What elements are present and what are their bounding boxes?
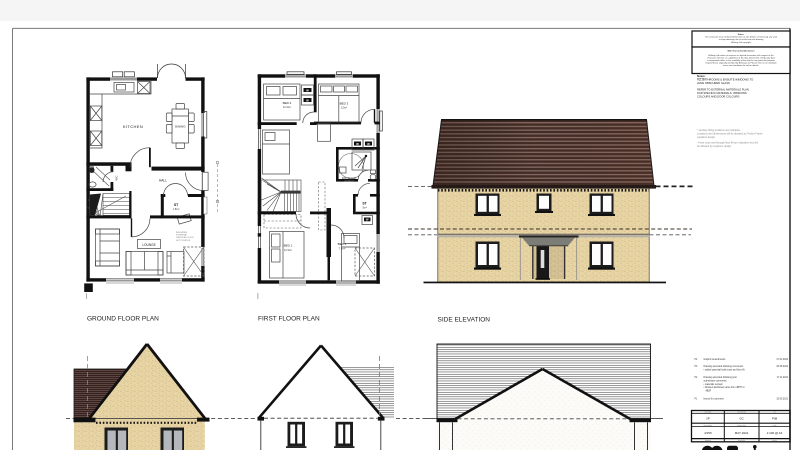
svg-text:12m²: 12m²	[341, 106, 347, 110]
svg-text:W: W	[356, 142, 359, 146]
svg-text:Bellway Ltd makes no express o: Bellway Ltd makes no express or implied …	[708, 54, 774, 57]
svg-text:scale: scale	[773, 425, 777, 427]
svg-text:20.05.2022: 20.05.2022	[777, 366, 789, 368]
svg-text:LIFT POSITION: LIFT POSITION	[176, 240, 191, 242]
svg-text:BED 4: BED 4	[283, 101, 292, 105]
svg-text:Graphic amendments: Graphic amendments	[704, 358, 727, 361]
svg-text:or shop drawings, do not scale: or shop drawings, do not scale from this…	[719, 38, 764, 41]
svg-text:Bellway Ltd copyright: Bellway Ltd copyright	[731, 41, 751, 44]
svg-text:W: W	[306, 98, 309, 102]
svg-text:HALL: HALL	[159, 179, 167, 183]
svg-text:P08: P08	[772, 417, 778, 421]
svg-text:11.5m²: 11.5m²	[284, 248, 292, 252]
svg-text:suppliers design.: suppliers design.	[697, 136, 716, 139]
svg-text:checked by: checked by	[737, 412, 746, 414]
svg-text:BED 2: BED 2	[338, 242, 347, 246]
svg-text:KITCHEN: KITCHEN	[123, 124, 143, 129]
svg-text:submission comments:: submission comments:	[704, 379, 728, 382]
svg-text:3m²: 3m²	[362, 206, 367, 210]
svg-text:Notes:: Notes:	[738, 33, 745, 36]
svg-text:POTENTIAL: POTENTIAL	[176, 234, 188, 237]
svg-text:INDICATIVE: INDICATIVE	[176, 231, 188, 234]
svg-text:• materials revised;: • materials revised;	[704, 383, 724, 386]
svg-text:4B2P: 4B2P	[706, 391, 712, 393]
svg-text:27.01.2022: 27.01.2022	[777, 359, 789, 361]
svg-text:2P: 2P	[706, 417, 710, 421]
svg-text:planning: planning	[705, 412, 711, 414]
svg-text:REFER TO EXTERNAL MATERIALS PL: REFER TO EXTERNAL MATERIALS PLAN	[697, 88, 749, 92]
svg-text:Web Transmittal Disclaimer: Web Transmittal Disclaimer	[727, 49, 754, 52]
svg-text:terms and conditions for furth: terms and conditions for further details…	[723, 64, 759, 67]
svg-text:GROUND FLOOR PLAN: GROUND FLOOR PLAN	[87, 316, 159, 323]
svg-text:be dictated by suppliers desig: be dictated by suppliers design	[697, 145, 732, 148]
svg-text:1.8m²: 1.8m²	[173, 207, 180, 211]
svg-text:4/155: 4/155	[704, 431, 712, 435]
svg-text:HAVE OBSCURED GLASS: HAVE OBSCURED GLASS	[697, 81, 730, 85]
svg-text:FOR SPECIFIC MATERIALS, WINDOW: FOR SPECIFIC MATERIALS, WINDOWS	[697, 91, 747, 95]
svg-text:Drawing amended following comm: Drawing amended following comments:	[704, 365, 744, 368]
svg-text:drawn date: drawn date	[737, 424, 745, 427]
svg-text:1:100 @ A3: 1:100 @ A3	[767, 431, 783, 435]
svg-text:7.6m²: 7.6m²	[339, 247, 346, 251]
svg-text:Notes:: Notes:	[697, 74, 705, 78]
svg-text:see (fittings): see (fittings)	[344, 180, 354, 183]
svg-text:job number: job number	[703, 424, 713, 427]
svg-text:The contractor must verify all: The contractor must verify all dimension…	[705, 36, 778, 39]
svg-text:BED 3: BED 3	[340, 102, 349, 106]
svg-text:beyond those originally intend: beyond those originally intended by Bell…	[706, 62, 778, 65]
svg-text:W: W	[306, 88, 309, 92]
svg-text:character, function, or capabi: character, function, or capabilities of …	[707, 56, 776, 59]
svg-text:drawing: drawing	[705, 439, 711, 442]
svg-text:LOUNGE: LOUNGE	[142, 243, 155, 247]
svg-text:BATHROOM: BATHROOM	[342, 177, 356, 180]
svg-text:11.0m²: 11.0m²	[283, 105, 291, 109]
svg-text:drawn by: drawn by	[738, 439, 745, 442]
svg-text:17.11.2021: 17.11.2021	[777, 377, 789, 379]
svg-text:rev: rev	[773, 411, 776, 414]
svg-text:• Revised plot/street name fro: • Revised plot/street name from 4B7H to	[704, 386, 746, 389]
svg-text:MAY 2021: MAY 2021	[735, 431, 749, 435]
svg-text:incorporated within, or the su: incorporated within, or the suitability …	[707, 59, 775, 62]
svg-text:26.05.2021: 26.05.2021	[777, 399, 789, 401]
svg-text:• added potential hoist route: • added potential hoist route and floor …	[704, 368, 745, 371]
svg-text:Drawing amended following post: Drawing amended following post	[704, 376, 738, 379]
svg-text:Issued for comment: Issued for comment	[704, 398, 725, 401]
svg-text:COLOURS AND DOOR COLOURS: COLOURS AND DOOR COLOURS	[697, 94, 740, 98]
svg-text:BED 1: BED 1	[284, 244, 293, 248]
svg-text:FIRST FLOOR PLAN: FIRST FLOOR PLAN	[258, 316, 320, 323]
svg-text:DINING: DINING	[175, 125, 186, 129]
svg-text:W: W	[367, 142, 370, 146]
svg-text:W/C: W/C	[114, 175, 118, 180]
svg-text:status: status	[772, 439, 777, 442]
svg-text:SIDE ELEVATION: SIDE ELEVATION	[438, 317, 491, 324]
svg-text:ALL BATHROOMS & ENSUITE WINDOW: ALL BATHROOMS & ENSUITE WINDOWS TO	[697, 78, 753, 82]
